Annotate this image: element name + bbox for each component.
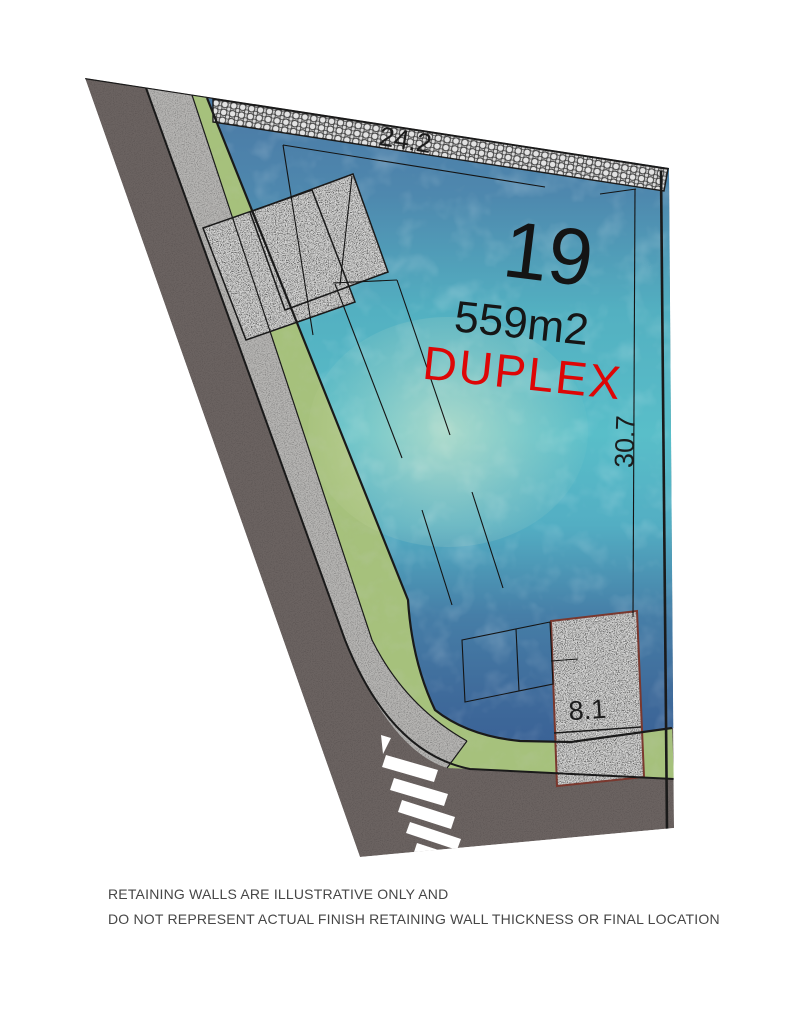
- disclaimer-text: RETAINING WALLS ARE ILLUSTRATIVE ONLY AN…: [108, 886, 720, 927]
- lot-number-label: 19: [499, 204, 598, 303]
- lot-plan-drawing: 24.2 30.7 8.1 19 559m2 DUPLEX RETAINING …: [0, 0, 791, 1024]
- dim-right-label: 30.7: [609, 415, 641, 469]
- disclaimer-line-2: DO NOT REPRESENT ACTUAL FINISH RETAINING…: [108, 911, 720, 927]
- dim-bottom-label: 8.1: [568, 694, 608, 727]
- lot-plan-page: 24.2 30.7 8.1 19 559m2 DUPLEX RETAINING …: [0, 0, 791, 1024]
- disclaimer-line-1: RETAINING WALLS ARE ILLUSTRATIVE ONLY AN…: [108, 886, 448, 902]
